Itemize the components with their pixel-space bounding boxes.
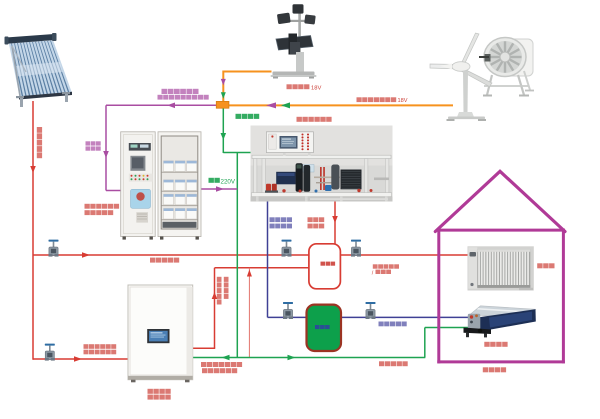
svg-text:18V: 18V: [311, 85, 321, 91]
svg-text:18V: 18V: [398, 98, 408, 104]
svg-text:/: /: [372, 271, 374, 277]
svg-text:220V: 220V: [221, 179, 236, 186]
